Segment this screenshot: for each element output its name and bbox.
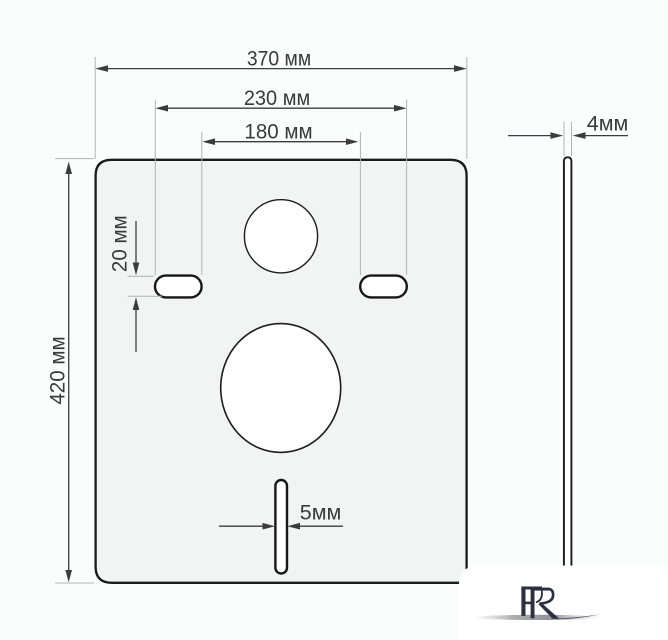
svg-text:420 мм: 420 мм <box>46 336 69 404</box>
svg-text:4мм: 4мм <box>587 111 629 135</box>
svg-text:180 мм: 180 мм <box>244 120 312 144</box>
svg-text:230 мм: 230 мм <box>244 86 310 110</box>
svg-text:5мм: 5мм <box>300 501 342 525</box>
svg-text:20 мм: 20 мм <box>108 215 132 272</box>
svg-text:370 мм: 370 мм <box>247 46 311 70</box>
